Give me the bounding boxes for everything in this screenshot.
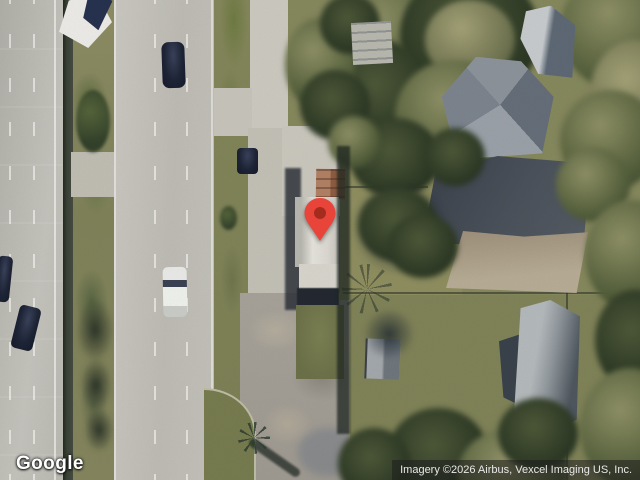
google-logo[interactable]: Google <box>16 453 84 475</box>
tree-shadow <box>84 408 114 452</box>
road-edge-line <box>114 0 116 480</box>
vehicle <box>163 267 188 317</box>
building-shadow <box>297 288 339 306</box>
tree-shadow <box>362 310 416 358</box>
road-lane-line <box>186 0 188 480</box>
tree <box>388 214 458 278</box>
vehicle <box>237 148 258 174</box>
highway-edge-line <box>54 0 56 480</box>
house-roof <box>446 231 588 293</box>
shed-roof <box>351 21 393 65</box>
road-lane-line <box>154 0 156 480</box>
white-building-wing <box>299 264 339 290</box>
median-crossover <box>71 152 115 197</box>
bush <box>220 206 237 230</box>
tree <box>425 128 485 186</box>
vehicle <box>161 42 186 89</box>
highway-lane-line <box>9 0 11 480</box>
driveway-apron <box>214 88 252 136</box>
fence-treeline <box>337 146 350 434</box>
marker-inner-dot <box>314 207 326 219</box>
tree-shadow <box>76 298 114 362</box>
tree-shadow <box>80 358 112 412</box>
highway-lane-line <box>33 0 35 480</box>
palm-tree <box>238 422 270 454</box>
marker-body <box>305 198 336 241</box>
location-marker-icon[interactable] <box>303 197 337 242</box>
highway-median-barrier <box>63 0 73 480</box>
bush <box>76 90 110 152</box>
tree <box>328 116 380 168</box>
satellite-map[interactable]: Google Imagery ©2026 Airbus, Vexcel Imag… <box>0 0 640 480</box>
imagery-attribution: Imagery ©2026 Airbus, Vexcel Imaging US,… <box>392 460 640 480</box>
